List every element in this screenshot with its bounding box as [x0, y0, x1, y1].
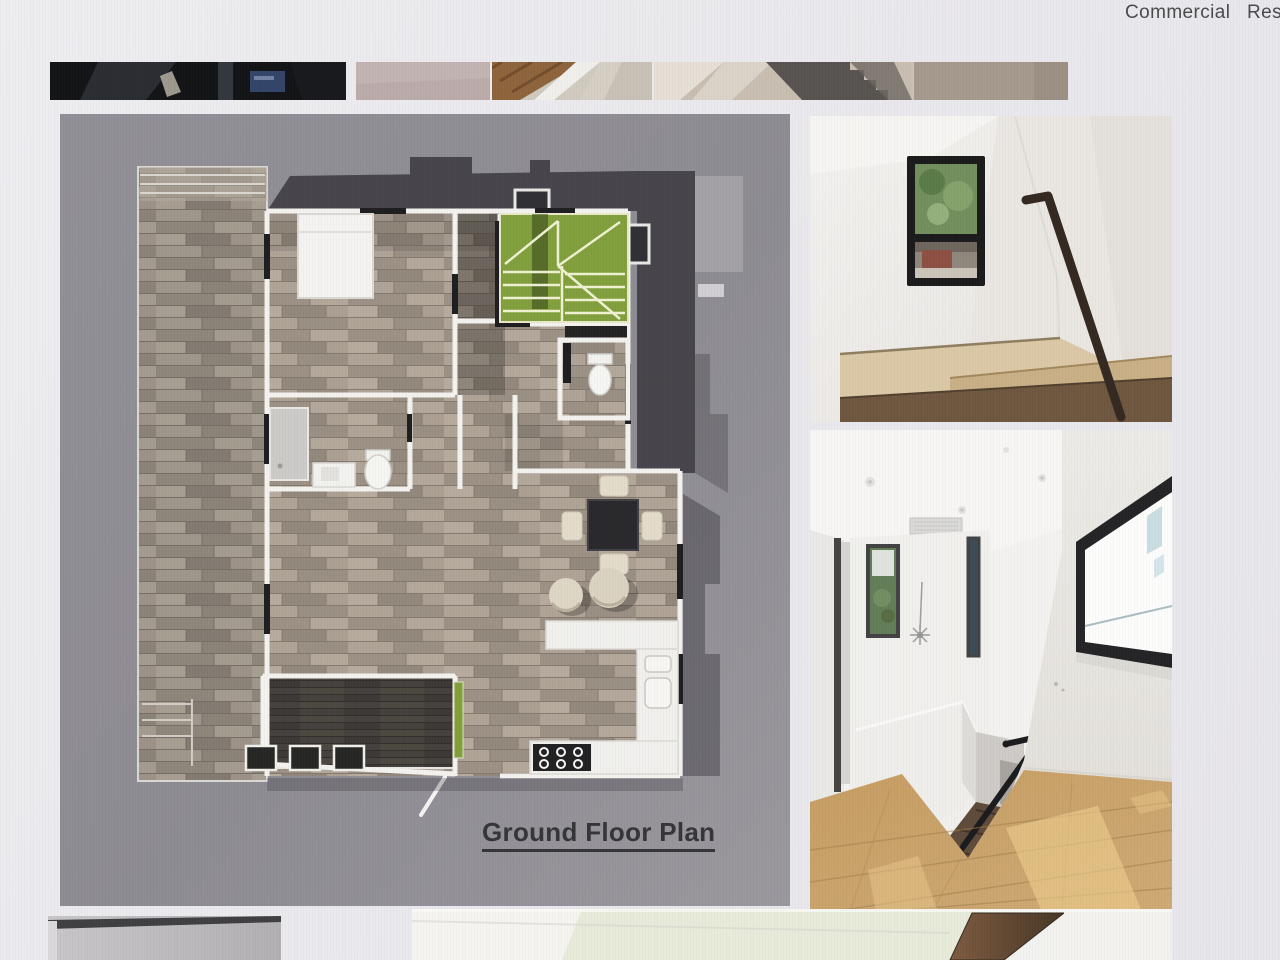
wood-beam-art [492, 62, 652, 100]
staircase [500, 214, 628, 339]
driveway-strip [138, 167, 267, 781]
gallery-thumbnail-carpet-stairs[interactable] [654, 62, 1068, 100]
gallery-thumbnail-dark-interior[interactable] [50, 62, 346, 100]
gallery-thumbnail-bottom-left[interactable] [48, 916, 281, 960]
dark-interior-art [50, 62, 346, 100]
hallway-art [810, 430, 1172, 912]
nav-item-residential[interactable]: Residential [1247, 2, 1280, 24]
floor-plan-art [60, 114, 790, 906]
carpet-stairs-art [654, 62, 1068, 100]
gallery-thumbnail-wood-beam[interactable] [492, 62, 652, 100]
planters [246, 746, 364, 770]
mauve-wall-art [356, 62, 490, 100]
nav-item-commercial[interactable]: Commercial [1125, 2, 1230, 24]
gallery-thumbnail-bottom-wide[interactable] [412, 909, 1172, 960]
beam-interior-art [412, 909, 1172, 960]
bed [298, 214, 373, 298]
stairwell-photo[interactable] [810, 116, 1172, 422]
top-navigation: Commercial Residential [0, 0, 1280, 30]
gray-wall-art [48, 916, 281, 960]
floor-plan-image[interactable]: Ground Floor Plan [60, 114, 790, 906]
hallway-photo[interactable] [810, 430, 1172, 912]
page: Commercial Residential [0, 0, 1280, 960]
stair-window [907, 156, 985, 286]
stairwell-art [810, 116, 1172, 422]
floor-plan-caption: Ground Floor Plan [482, 817, 715, 852]
green-door [454, 682, 463, 758]
gallery-thumbnail-mauve-wall[interactable] [356, 62, 490, 100]
